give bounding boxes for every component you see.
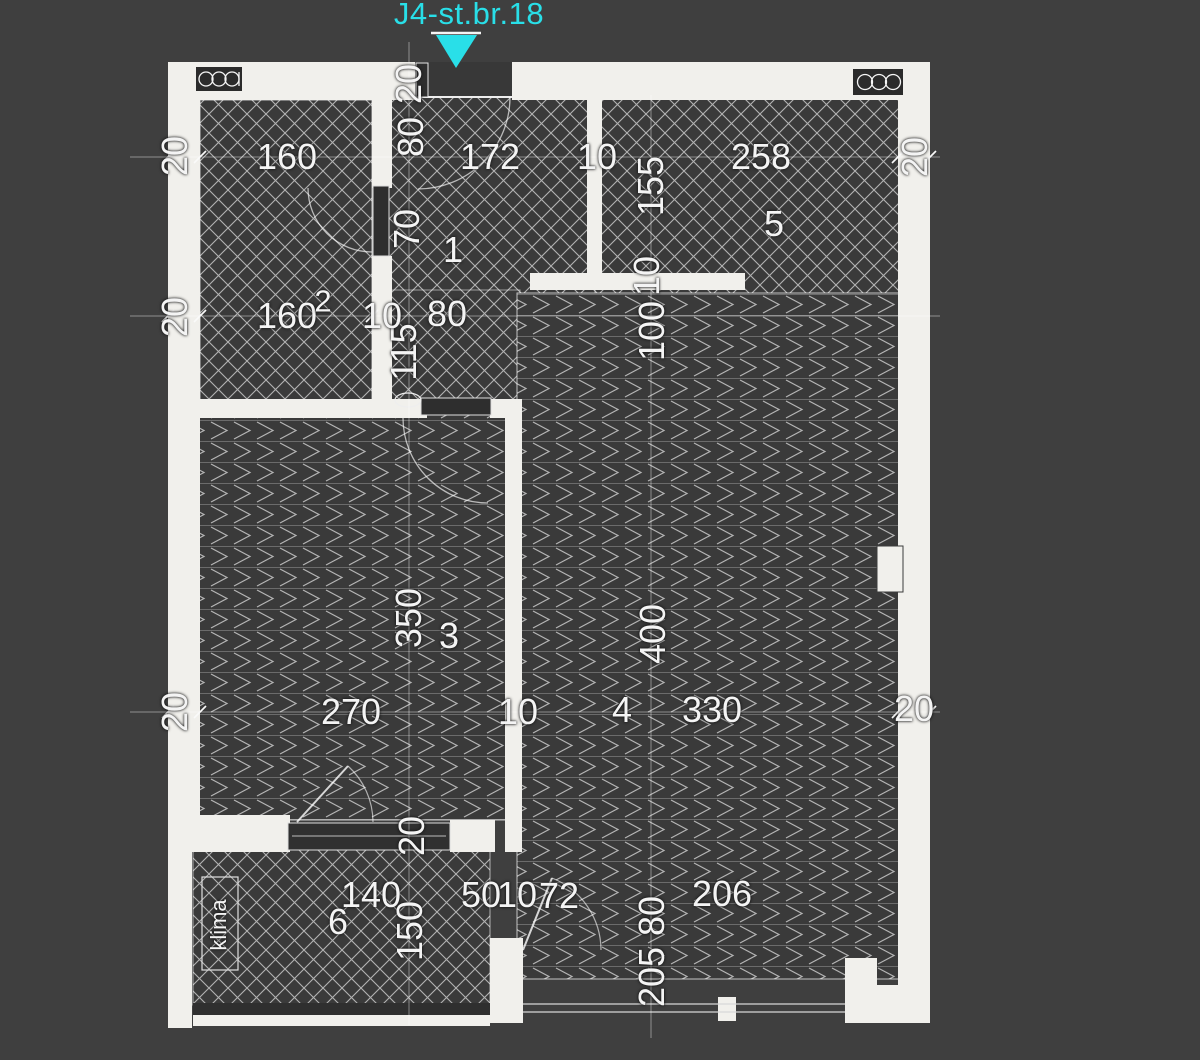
floor-plan-canvas: J4-st.br.18 2080701151601721025820201551…	[0, 0, 1200, 1060]
bottom-window-glass	[523, 1004, 845, 1012]
window-mullion	[718, 997, 736, 1021]
wall-room3-room4	[505, 418, 522, 852]
wall-left-lower	[168, 850, 192, 1028]
wall-balcony-top-left	[168, 815, 290, 852]
wall-mid-horizontal	[530, 273, 745, 290]
pillar-window-left	[490, 938, 523, 1023]
wall-room2-hall-b	[372, 256, 392, 402]
wall-room2-hall-a	[372, 100, 392, 188]
pillar-window-right	[845, 958, 877, 1023]
floor-plan-drawing	[0, 0, 1200, 1060]
wall-hall-room3-a	[195, 399, 427, 418]
drawing-title: J4-st.br.18	[394, 0, 544, 32]
room3-doorway	[421, 398, 491, 415]
entrance-opening	[415, 62, 512, 98]
wall-niche	[877, 546, 903, 592]
vent-symbol-top-left	[196, 67, 242, 91]
wall-right	[898, 62, 930, 1023]
wall-hall-room3-b	[490, 399, 522, 418]
room-hatch-areas	[193, 95, 905, 1016]
room2-door-leaf	[373, 186, 389, 256]
wall-balcony-sill	[193, 1015, 490, 1026]
entrance-door-leaf	[416, 63, 428, 97]
balcony-edge-strip	[193, 1003, 490, 1016]
wall-left	[168, 100, 200, 850]
vent-symbol-top-right	[853, 69, 903, 95]
wall-bottom-right-step	[877, 985, 898, 1023]
wall-balcony-top-right	[450, 820, 495, 852]
wall-hall-room5	[587, 100, 602, 275]
